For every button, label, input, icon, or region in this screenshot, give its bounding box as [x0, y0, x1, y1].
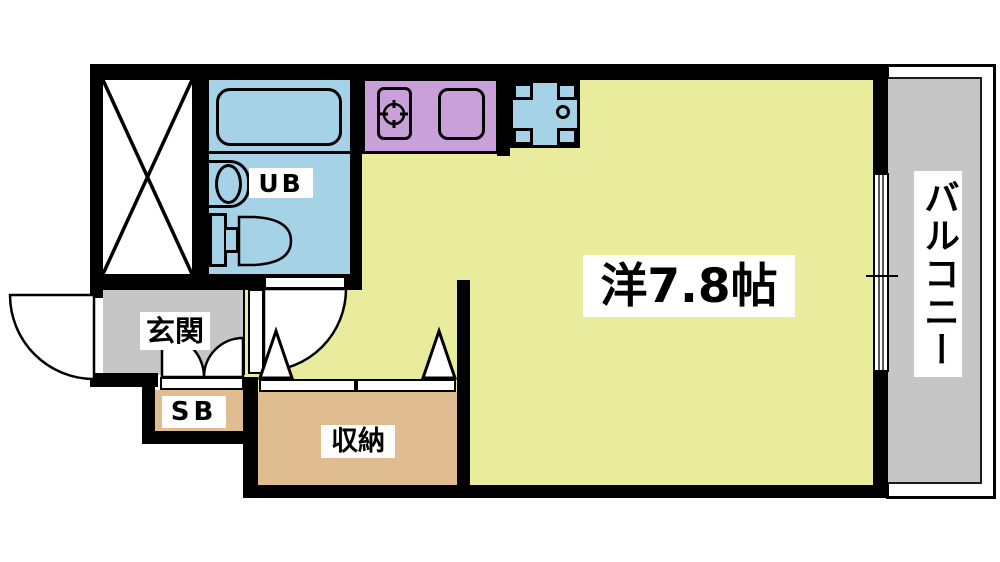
entrance-label: 玄関 — [140, 312, 210, 350]
storage-label: 収納 — [321, 425, 395, 458]
entry-door-arc-icon — [10, 295, 94, 379]
toilet-icon — [239, 217, 291, 265]
unit-bath-label: UB — [249, 168, 313, 198]
shoe-box-label: SB — [162, 396, 226, 428]
floorplan: UB 洋7.8帖 玄関 SB 収納 バルコニー — [0, 0, 1000, 562]
main-room-label: 洋7.8帖 — [583, 255, 795, 317]
balcony-label: バルコニー — [914, 171, 962, 377]
stove-burner-ticks-icon — [380, 100, 408, 128]
sliding-window-icon — [866, 174, 898, 371]
x-shaft-icon — [103, 80, 192, 274]
symbol-overlay — [0, 0, 1000, 562]
